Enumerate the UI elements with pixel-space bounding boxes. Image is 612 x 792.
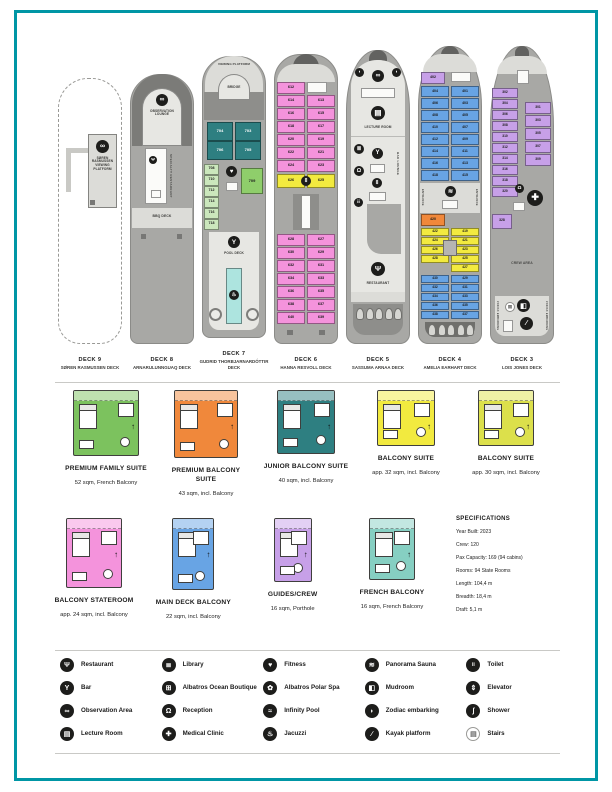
legend-item: ≈Infinity Pool [263, 704, 365, 718]
cabin: 640 [277, 312, 305, 325]
pillow-shape [180, 404, 198, 411]
deck-area [513, 202, 525, 211]
pillow-shape [484, 404, 502, 411]
deck-facility-icon: Y [372, 148, 383, 159]
deck-plan: 6126146136166156186176206196226216246236… [273, 44, 339, 352]
deck-area [307, 82, 327, 93]
cabin: 628 [277, 234, 305, 247]
pillow-shape [79, 404, 97, 411]
table-shape [103, 569, 113, 579]
deck-vertical-text: ZODIAC EMBARKING [545, 298, 548, 334]
cabin: 431 [451, 284, 479, 293]
cabin: 627 [307, 234, 335, 247]
cabin: 302 [492, 88, 518, 99]
sofa-shape [72, 572, 87, 581]
deck-facility-icon: ✚ [527, 190, 543, 206]
cabin: 710 [204, 175, 219, 186]
mudroom-icon: ◧ [365, 681, 379, 695]
deck-facility-icon: ▤ [371, 106, 385, 120]
cabin: 328 [492, 214, 512, 229]
library-icon: ≣ [162, 658, 176, 672]
restaurant-icon: Ψ [60, 658, 74, 672]
legend-label: Kayak platform [386, 730, 431, 738]
cabin: 623 [307, 160, 335, 173]
sofa-shape [79, 440, 94, 449]
cabin: 403 [451, 98, 479, 110]
deck-name: LOIS JONES DECK [483, 365, 561, 371]
deck-area [515, 46, 529, 56]
deck-label: DECK 5SASSUMA ARNAA DECK [339, 357, 417, 371]
suite: ↑BALCONY STATEROOMapp. 24 sqm, incl. Bal… [48, 518, 140, 620]
bathroom-shape [193, 531, 209, 545]
suite-size: 43 sqm, incl. Balcony [179, 491, 234, 497]
deck-facility-icon: ◗ [392, 68, 401, 77]
legend-label: Shower [487, 707, 509, 715]
legend-item: ♥Fitness [263, 658, 365, 672]
cabin: 638 [277, 299, 305, 312]
bathroom-shape [217, 403, 233, 417]
deck-vertical-text: BAR LOUNGE [396, 144, 400, 184]
cabin: 637 [307, 299, 335, 312]
deck-number: DECK 7 [195, 351, 273, 357]
elevator-icon: ⇕ [466, 681, 480, 695]
cabin: 303 [525, 115, 551, 128]
legend-label: Panorama Sauna [386, 661, 436, 669]
legend-item: YBar [60, 681, 162, 695]
kayak-platform-icon: ∕ [365, 727, 379, 741]
cabin: 706 [207, 141, 233, 160]
cabin: 714 [204, 197, 219, 208]
specification-item: Length: 104,4 m [456, 581, 576, 587]
infinity-pool-icon: ≈ [263, 704, 277, 718]
deck-area [351, 292, 405, 302]
cabin: 312 [492, 143, 518, 154]
deck-plans-row: ∞SØREN RASMUSSEN VIEWING PLATFORMDECK 9S… [57, 38, 555, 370]
specifications-list: Year Built: 2023Crew: 120Pax Capacity: 1… [456, 529, 576, 613]
suites-row-1: ↑PREMIUM FAMILY SUITE52 sqm, French Balc… [58, 390, 554, 497]
legend-item: ≣Library [162, 658, 264, 672]
bar-icon: Y [60, 681, 74, 695]
bathroom-shape [291, 531, 307, 545]
legend-label: Elevator [487, 684, 511, 692]
deck-number: DECK 5 [339, 357, 417, 363]
deck-facility-icon: ∞ [372, 70, 384, 82]
legend-item: ΨRestaurant [60, 658, 162, 672]
deck-column: 3023043063083103123143163183203013033053… [489, 44, 555, 371]
legend-label: Toilet [487, 661, 503, 669]
suite-floorplan: ↑ [274, 518, 312, 582]
legend-label: Fitness [284, 661, 306, 669]
suite: ↑PREMIUM BALCONY SUITE43 sqm, incl. Balc… [158, 390, 254, 497]
cabin: 617 [307, 121, 335, 134]
suite-size: 22 sqm, incl. Balcony [166, 614, 221, 620]
stairs-icon: ▤ [466, 727, 480, 741]
deck-label: DECK 3LOIS JONES DECK [483, 357, 561, 371]
deck-facility-icon: ≋ [445, 186, 456, 197]
suite-floorplan: ↑ [172, 518, 214, 590]
cabin: 718 [204, 219, 219, 230]
legend-item: ⊞Albatros Ocean Boutique [162, 681, 264, 695]
sofa-shape [180, 442, 195, 451]
deck-name: HANNA RESVOLL DECK [267, 365, 345, 371]
cabin: 414 [421, 146, 449, 158]
deck-area [226, 182, 238, 191]
zodiac-bump [385, 308, 393, 321]
entrance-arrow-icon: ↑ [114, 551, 118, 559]
cabin: 301 [525, 102, 551, 115]
suite-floorplan: ↑ [66, 518, 122, 588]
cabin: 633 [307, 273, 335, 286]
cabin: 429 [451, 275, 479, 284]
cabin: 704 [207, 122, 233, 141]
legend-label: Bar [81, 684, 91, 692]
specification-item: Rooms: 94 State Rooms [456, 568, 576, 574]
cabin: 409 [451, 134, 479, 146]
cabin: 406 [421, 98, 449, 110]
suite-floorplan: ↑ [277, 390, 335, 454]
sofa-shape [383, 430, 398, 439]
cabin: 712 [204, 186, 219, 197]
entrance-arrow-icon: ↑ [206, 551, 210, 559]
cabin: 437 [451, 311, 479, 320]
specification-item: Breadth: 18,4 m [456, 594, 576, 600]
cabin: 636 [277, 286, 305, 299]
balcony-stripe [67, 519, 121, 529]
divider-top [55, 382, 560, 383]
legend-label: Lecture Room [81, 730, 123, 738]
cabin: 416 [421, 158, 449, 170]
legend-label: Infinity Pool [284, 707, 319, 715]
zodiac-bump [375, 308, 383, 321]
specification-item: Draft: 5,1 m [456, 607, 576, 613]
deck-area [442, 200, 458, 209]
deck-name: AMELIA EARHART DECK [411, 365, 489, 371]
legend-item: ♨Jacuzzi [263, 727, 365, 741]
cabin: 310 [492, 132, 518, 143]
legend-item: ∕Kayak platform [365, 727, 467, 741]
deck-name: ARNARULUNNGUAQ DECK [123, 365, 201, 371]
entrance-arrow-icon: ↑ [526, 423, 530, 431]
deck-number: DECK 9 [51, 357, 129, 363]
deck-vertical-text: SPECIALTY RESTAURANT [169, 150, 173, 202]
cabin: 622 [277, 147, 305, 160]
bathroom-shape [101, 531, 117, 545]
balcony-stripe [175, 391, 237, 401]
deck-text: LECTURE ROOM [351, 126, 405, 130]
zodiac-bump [356, 308, 364, 321]
deck-name: SØREN RASMUSSEN DECK [51, 365, 129, 371]
legend-label: Medical Clinic [183, 730, 224, 738]
bathroom-shape [314, 403, 330, 417]
bathroom-shape [118, 403, 134, 417]
deck-plan: VIEWING PLATFORMBRIDGE704703706705708710… [201, 38, 267, 346]
balcony-stripe [275, 519, 311, 529]
cabin: 308 [492, 121, 518, 132]
shower-icon: ʃ [466, 704, 480, 718]
suite-floorplan: ↑ [174, 390, 238, 458]
zodiac-bump [428, 324, 436, 337]
deck-vertical-text: ZODIAC EMBARKING [496, 298, 499, 334]
polar-spa-icon: ✿ [263, 681, 277, 695]
deck-plan: ∞OBSERVATION LOUNGESPECIALTY RESTAURANTΨ… [129, 44, 195, 352]
deck-label: DECK 6HANNA RESVOLL DECK [267, 357, 345, 371]
zodiac-bump [366, 308, 374, 321]
suite: ↑FRENCH BALCONY16 sqm, French Balcony [346, 518, 438, 620]
suite-floorplan: ↑ [369, 518, 415, 580]
legend-item: ✚Medical Clinic [162, 727, 264, 741]
cabin: 405 [451, 110, 479, 122]
cabin: 404 [421, 86, 449, 98]
legend-column: ≋Panorama Sauna◧Mudroom◗Zodiac embarking… [365, 658, 467, 741]
legend-column: ♥Fitness✿Albatros Polar Spa≈Infinity Poo… [263, 658, 365, 741]
specification-item: Pax Capacity: 169 (94 cabins) [456, 555, 576, 561]
cabin: 309 [525, 154, 551, 167]
deck-facility-icon: ◧ [517, 299, 530, 312]
pillow-shape [283, 404, 301, 411]
sofa-shape [178, 574, 193, 583]
cabin: 430 [421, 275, 449, 284]
deck-area [66, 148, 71, 192]
specification-item: Crew: 120 [456, 542, 576, 548]
cabin: 438 [421, 311, 449, 320]
zodiac-bump [394, 308, 402, 321]
legend-item: ▤Stairs [466, 727, 568, 741]
lecture-room-icon: ▤ [60, 727, 74, 741]
legend-item: ΩReception [162, 704, 264, 718]
sofa-shape [375, 564, 390, 573]
cabin: 621 [307, 147, 335, 160]
suite-name: JUNIOR BALCONY SUITE [264, 463, 348, 472]
balcony-stripe [479, 391, 533, 401]
table-shape [396, 561, 406, 571]
deck-area [319, 330, 325, 335]
deck-column: ◗◗∞▤LECTURE ROOM≣BAR LOUNGEYΩ⇕iiΨRESTAUR… [345, 44, 411, 371]
cabin: 618 [277, 121, 305, 134]
cabin: 413 [451, 158, 479, 170]
table-shape [316, 435, 326, 445]
zodiac-bump [438, 324, 446, 337]
suite-name: PREMIUM BALCONY SUITE [162, 467, 250, 485]
table-shape [120, 437, 130, 447]
legend-item: ✿Albatros Polar Spa [263, 681, 365, 695]
cabin: 407 [451, 122, 479, 134]
specifications-block: SPECIFICATIONS Year Built: 2023Crew: 120… [456, 516, 576, 613]
entrance-arrow-icon: ↑ [427, 423, 431, 431]
cabin: 415 [451, 170, 479, 182]
deck-facility-icon: ∕ [520, 317, 533, 330]
boutique-icon: ⊞ [162, 681, 176, 695]
cabin: 318 [492, 176, 518, 187]
legend-label: Stairs [487, 730, 504, 738]
suite-name: BALCONY STATEROOM [55, 597, 134, 606]
entrance-arrow-icon: ↑ [327, 423, 331, 431]
zodiac-bump [447, 324, 455, 337]
cabin: 716 [204, 208, 219, 219]
deck-area [443, 240, 457, 256]
deck-facility-icon: ≣ [354, 144, 364, 154]
cabin: 613 [307, 95, 335, 108]
suite: ↑JUNIOR BALCONY SUITE40 sqm, incl. Balco… [258, 390, 354, 497]
cabin: 306 [492, 110, 518, 121]
cabin: 305 [525, 128, 551, 141]
cabin: 401 [451, 86, 479, 98]
specifications-title: SPECIFICATIONS [456, 516, 576, 522]
observation-icon: ∞ [60, 704, 74, 718]
zodiac-embarking-icon: ◗ [365, 704, 379, 718]
cabin: 428 [421, 255, 449, 264]
suite-size: 16 sqm, French Balcony [361, 604, 424, 610]
entrance-arrow-icon: ↑ [131, 423, 135, 431]
entrance-arrow-icon: ↑ [230, 423, 234, 431]
suite-size: 16 sqm, Porthole [271, 606, 315, 612]
deck-number: DECK 4 [411, 357, 489, 363]
deck-area [361, 88, 395, 98]
legend-column: iiToilet⇕ElevatorʃShower▤Stairs [466, 658, 568, 741]
deck-area [423, 54, 477, 72]
deck-column: ∞OBSERVATION LOUNGESPECIALTY RESTAURANTΨ… [129, 44, 195, 371]
deck-facility-icon: ♨ [229, 290, 239, 300]
cabin: 703 [235, 122, 261, 141]
legend-label: Jacuzzi [284, 730, 306, 738]
deck-number: DECK 3 [483, 357, 561, 363]
deck-text: SØREN RASMUSSEN VIEWING PLATFORM [88, 157, 117, 172]
legend-item: ◗Zodiac embarking [365, 704, 467, 718]
cabin: 420 [421, 214, 445, 226]
legend-label: Albatros Polar Spa [284, 684, 339, 692]
cabin: 435 [451, 302, 479, 311]
legend-label: Restaurant [81, 661, 113, 669]
toilet-icon: ii [466, 658, 480, 672]
suite-name: BALCONY SUITE [478, 455, 534, 464]
cabin: 316 [492, 165, 518, 176]
legend-item: ∞Observation Area [60, 704, 162, 718]
bathroom-shape [394, 531, 410, 545]
table-shape [515, 427, 525, 437]
cabin: 625 [307, 174, 335, 189]
specification-item: Year Built: 2023 [456, 529, 576, 535]
deck-name: SASSUMA ARNAA DECK [339, 365, 417, 371]
pillow-shape [375, 532, 393, 539]
deck-column: ∞SØREN RASMUSSEN VIEWING PLATFORMDECK 9S… [57, 44, 123, 371]
deck-plan: 3023043063083103123143163183203013033053… [489, 44, 555, 352]
deck-area [287, 330, 293, 335]
deck-facility-icon: ∞ [96, 140, 109, 153]
suites-row-2: ↑BALCONY STATEROOMapp. 24 sqm, incl. Bal… [48, 518, 438, 620]
suite-name: GUIDES/CREW [268, 591, 317, 600]
suite: ↑BALCONY SUITEapp. 32 sqm, incl. Balcony [358, 390, 454, 497]
suite: ↑BALCONY SUITEapp. 30 sqm, incl. Balcony [458, 390, 554, 497]
cabin: 412 [421, 134, 449, 146]
ship-hull [58, 78, 122, 344]
cabin: 402 [421, 72, 445, 84]
suite-name: MAIN DECK BALCONY [156, 599, 231, 608]
deck-area [90, 200, 95, 205]
deck-column: VIEWING PLATFORMBRIDGE704703706705708710… [201, 38, 267, 370]
deck-label: DECK 9SØREN RASMUSSEN DECK [51, 357, 129, 371]
deck-text: POOL DECK [209, 252, 259, 256]
legend-label: Zodiac embarking [386, 707, 439, 715]
deck-label: DECK 4AMELIA EARHART DECK [411, 357, 489, 371]
deck-text: OBSERVATION LOUNGE [143, 110, 181, 117]
deck-plan: ◗◗∞▤LECTURE ROOM≣BAR LOUNGEYΩ⇕iiΨRESTAUR… [345, 44, 411, 352]
deck-label: DECK 7GUDRID THORBJARNARDÓTTIR DECK [195, 351, 273, 370]
cabin: 708 [204, 164, 219, 175]
cabin: 624 [277, 160, 305, 173]
cabin: 612 [277, 82, 305, 95]
suite: ↑PREMIUM FAMILY SUITE52 sqm, French Balc… [58, 390, 154, 497]
deck-facility-icon: Ψ [371, 262, 385, 276]
suite-size: app. 32 sqm, incl. Balcony [372, 470, 440, 476]
balcony-stripe [378, 391, 434, 401]
suite-size: app. 30 sqm, incl. Balcony [472, 470, 540, 476]
deck-number: DECK 8 [123, 357, 201, 363]
deck-text: RESTAURANT [351, 282, 405, 286]
cabin: 418 [421, 170, 449, 182]
cabin: 419 [451, 228, 479, 237]
cabin: 631 [307, 260, 335, 273]
deck-facility-icon: Ω [354, 166, 364, 176]
cabin: 410 [421, 122, 449, 134]
table-shape [195, 571, 205, 581]
deck-facility-icon: ◗ [355, 68, 364, 77]
deck-area [351, 136, 405, 137]
legend-label: Library [183, 661, 204, 669]
cabin: 411 [451, 146, 479, 158]
deck-area [503, 320, 513, 332]
deck-plan-page: ∞SØREN RASMUSSEN VIEWING PLATFORMDECK 9S… [0, 0, 612, 792]
suite-floorplan: ↑ [377, 390, 435, 446]
deck-text: CREW AREA [495, 262, 549, 266]
deck-facility-icon: ⇕ [372, 178, 382, 188]
suite-name: BALCONY SUITE [378, 455, 434, 464]
cabin: 434 [421, 293, 449, 302]
cabin: 616 [277, 108, 305, 121]
deck-area [451, 72, 471, 82]
jacuzzi-ring-icon [246, 308, 259, 321]
deck-name: GUDRID THORBJARNARDÓTTIR DECK [195, 359, 273, 370]
deck-area [277, 64, 335, 82]
deck-column: 6126146136166156186176206196226216246236… [273, 44, 339, 371]
balcony-stripe [74, 391, 138, 401]
deck-area [517, 70, 529, 84]
balcony-stripe [278, 391, 334, 401]
sofa-shape [484, 430, 499, 439]
deck-text: BRIDGE [218, 86, 250, 90]
cabin: 629 [307, 247, 335, 260]
suite-size: app. 24 sqm, incl. Balcony [60, 612, 128, 618]
deck-text: VIEWING PLATFORM [209, 63, 259, 66]
deck-vertical-text: ENTRANCE [421, 185, 424, 211]
legend-item: ◧Mudroom [365, 681, 467, 695]
balcony-stripe [370, 519, 414, 529]
cabin: 432 [421, 284, 449, 293]
suite-floorplan: ↑ [478, 390, 534, 446]
cabin: 614 [277, 95, 305, 108]
deck-area [177, 234, 182, 239]
fitness-icon: ♥ [263, 658, 277, 672]
legend-label: Reception [183, 707, 213, 715]
pillow-shape [383, 404, 401, 411]
cabin: 307 [525, 141, 551, 154]
cabin: 639 [307, 312, 335, 325]
suite-floorplan: ↑ [73, 390, 139, 456]
deck-area [141, 234, 146, 239]
panorama-sauna-icon: ≋ [365, 658, 379, 672]
bathroom-shape [513, 403, 529, 417]
deck-plan: 4024044014064034084054104074124094144114… [417, 44, 483, 352]
deck-number: DECK 6 [267, 357, 345, 363]
suite: ↑MAIN DECK BALCONY22 sqm, incl. Balcony [147, 518, 239, 620]
